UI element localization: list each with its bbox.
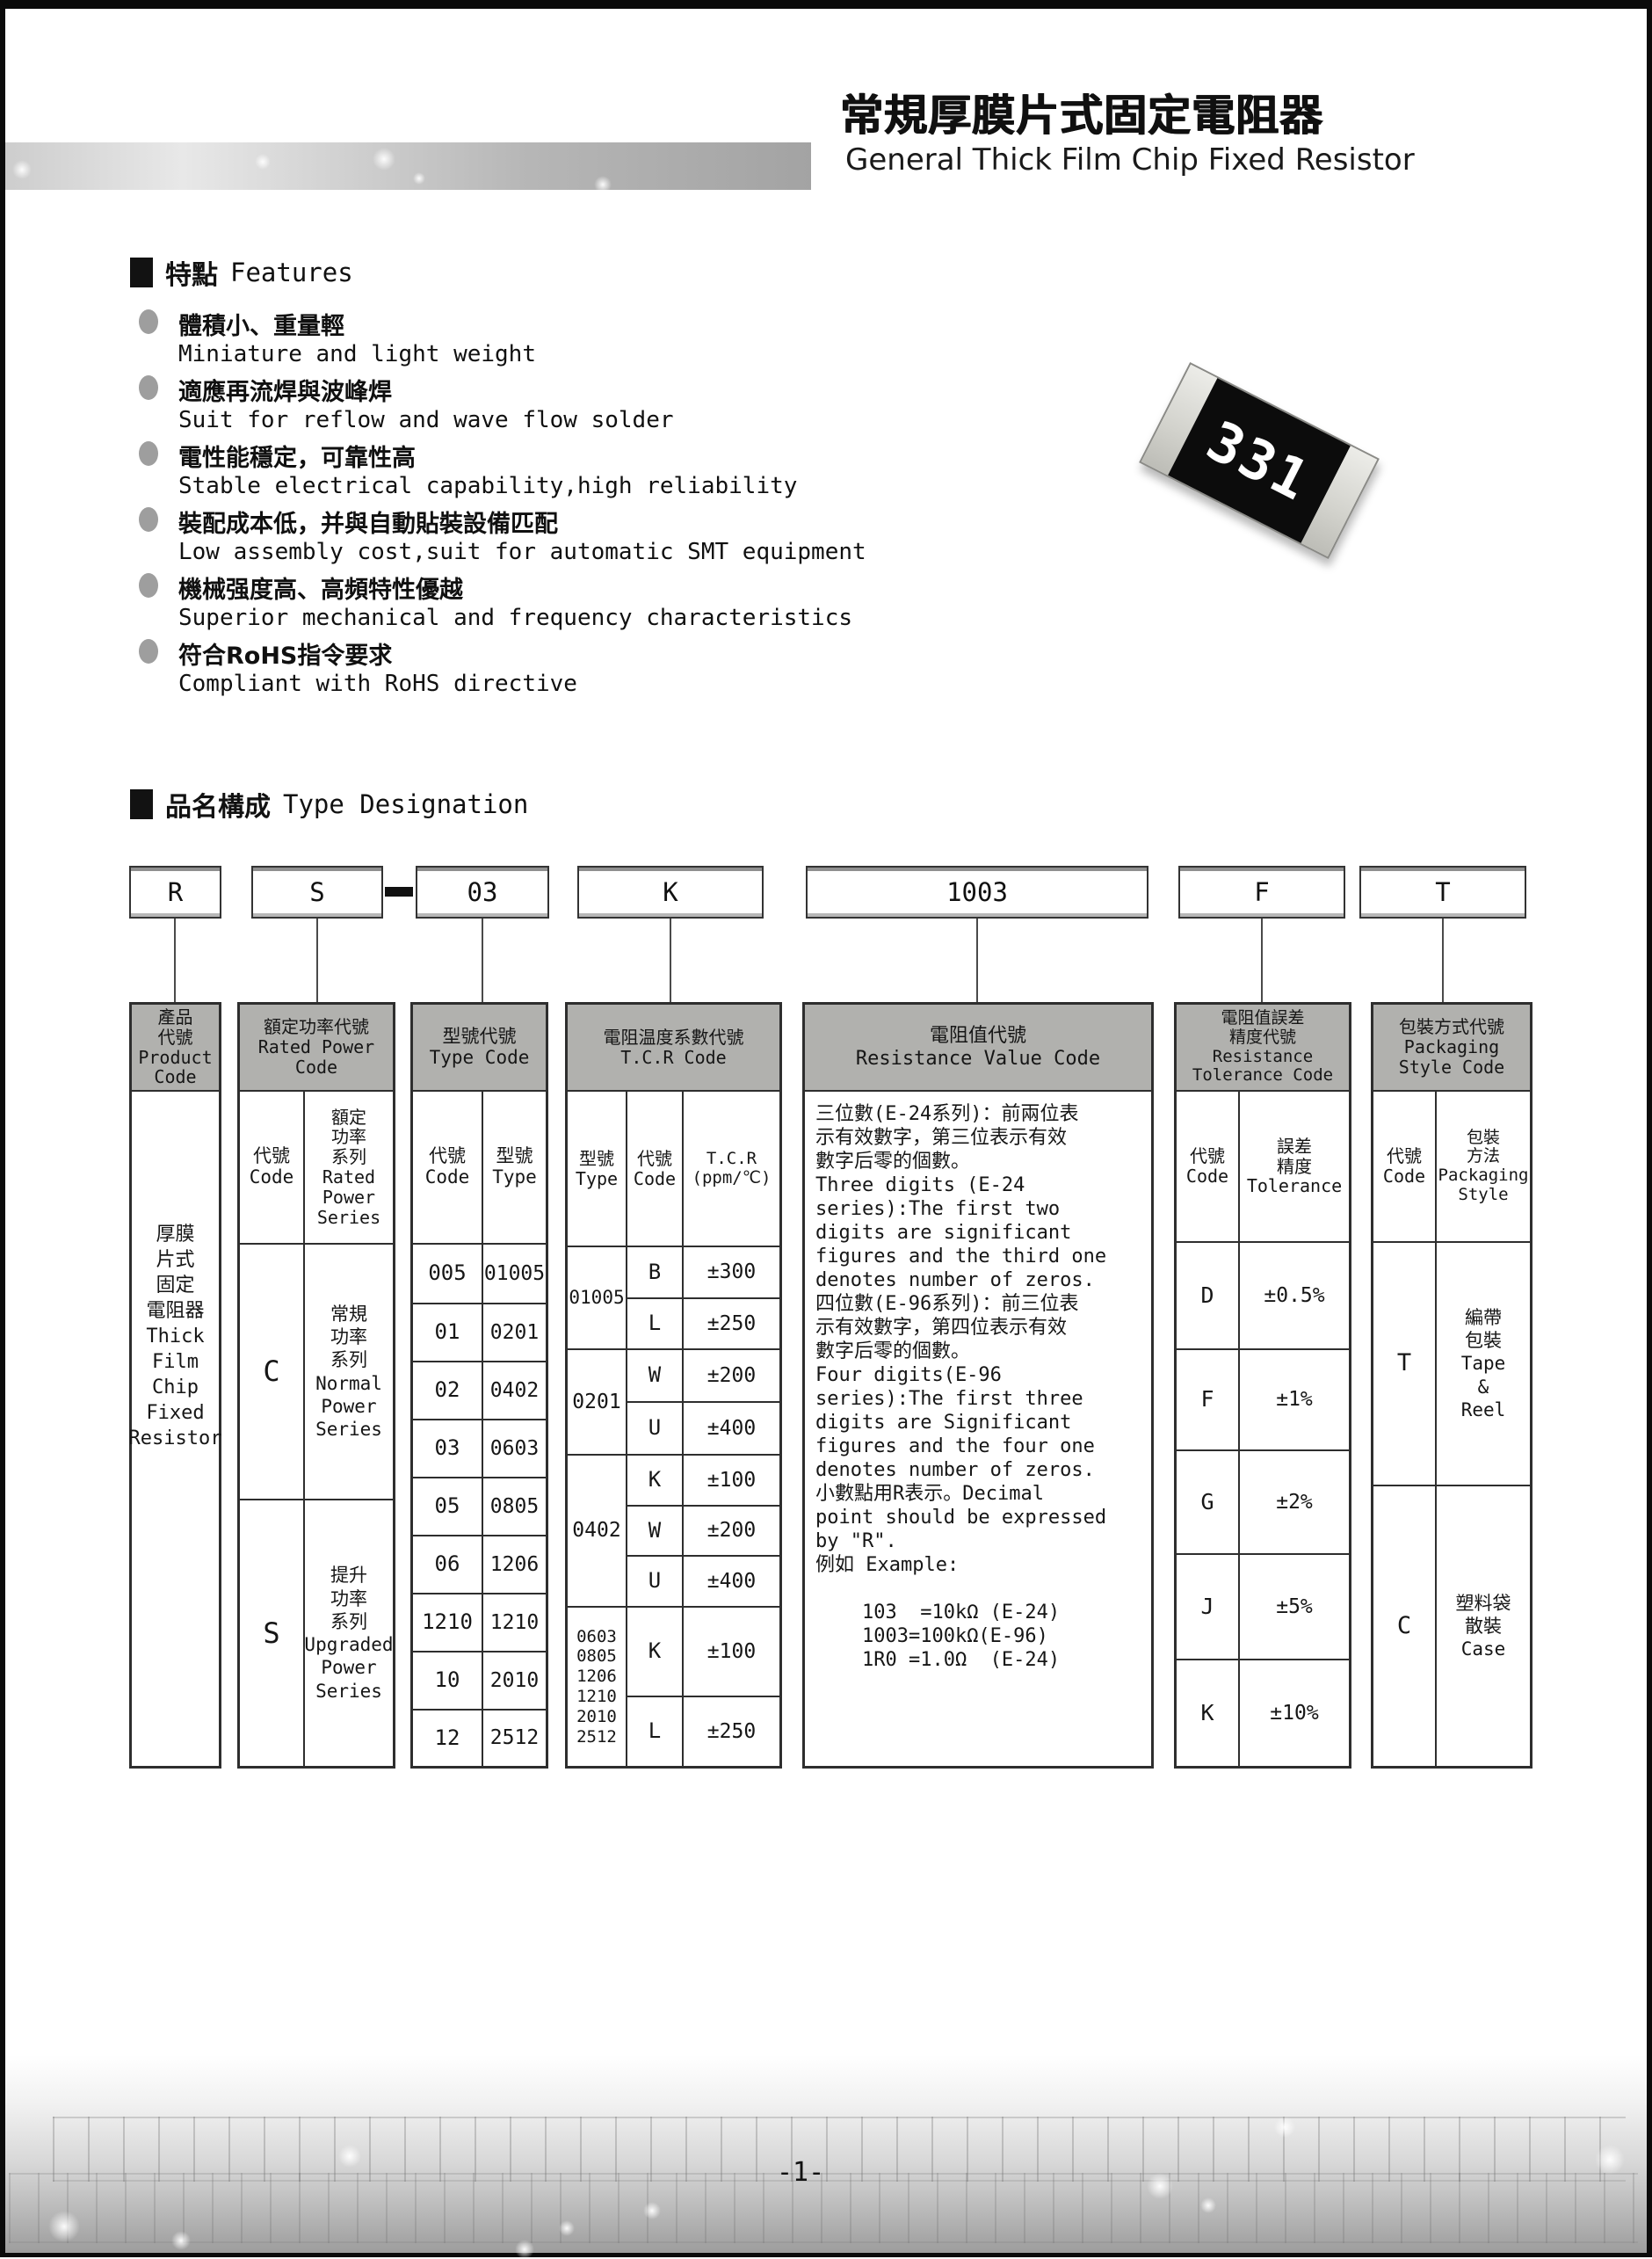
section-marker-icon: [130, 789, 153, 819]
feature-item-en: Low assembly cost,suit for automatic SMT…: [178, 539, 866, 565]
product-description: 厚膜 片式 固定 電阻器 Thick Film Chip Fixed Resis…: [132, 1090, 219, 1766]
tcr-value: ±400: [682, 1555, 779, 1606]
tcr-value: ±300: [682, 1246, 779, 1297]
features-heading-en: Features: [230, 258, 353, 287]
tolerance-code: G: [1177, 1449, 1238, 1553]
sparkle-icon: [1274, 2117, 1295, 2138]
sparkle-icon: [594, 176, 612, 193]
feature-item-zh: 電性能穩定，可靠性高: [178, 439, 416, 473]
feature-item-en: Suit for reflow and wave flow solder: [178, 407, 674, 433]
tcr-column: 電阻温度系數代號 T.C.R Code 型號 Type 代號 Code T.C.…: [565, 1002, 782, 1769]
type-row-type: 01005: [482, 1243, 546, 1303]
tcr-code: L: [626, 1297, 682, 1348]
connector-line: [1261, 919, 1263, 1002]
packaging-code: C: [1373, 1485, 1435, 1766]
type-row-type: 0603: [482, 1419, 546, 1477]
tcr-code: B: [626, 1246, 682, 1297]
type-row-type: 2512: [482, 1709, 546, 1766]
type-designation-heading-en: Type Designation: [283, 789, 528, 819]
tcr-code: K: [626, 1454, 682, 1505]
page-border-right: [1647, 0, 1652, 2257]
connector-line: [1442, 919, 1444, 1002]
page-border-top: [0, 0, 1652, 9]
tolerance-code: D: [1177, 1241, 1238, 1348]
type-code-column: 型號代號 Type Code 代號 Code 型號 Type 005 01005…: [410, 1002, 548, 1769]
feature-item-en: Superior mechanical and frequency charac…: [178, 605, 852, 631]
sparkle-icon: [373, 148, 395, 171]
code-box-tolerance: F: [1178, 866, 1345, 919]
type-row-code: 10: [413, 1651, 482, 1709]
bullet-icon: [139, 441, 158, 466]
tcr-value: ±200: [682, 1348, 779, 1401]
sparkle-icon: [1595, 2145, 1625, 2175]
type-row-type: 0805: [482, 1477, 546, 1535]
tcr-value: ±250: [682, 1696, 779, 1766]
subheader-tcr: T.C.R (ppm/℃): [682, 1090, 779, 1246]
sparkle-icon: [12, 160, 32, 179]
tolerance-value: ±5%: [1238, 1553, 1349, 1659]
tcr-group-type: 01005: [568, 1246, 626, 1348]
sparkle-icon: [48, 2211, 80, 2242]
header-gradient-band: [5, 142, 811, 190]
type-row-type: 1210: [482, 1593, 546, 1651]
tcr-group-type: 0603 0805 1206 1210 2010 2512: [568, 1606, 626, 1766]
column-header: 包裝方式代號 Packaging Style Code: [1373, 1005, 1530, 1090]
column-header: 型號代號 Type Code: [413, 1005, 546, 1090]
code-box-tcr: K: [577, 866, 764, 919]
footer-box-pattern: [53, 2117, 1626, 2182]
rated-power-column: 額定功率代號 Rated Power Code 代號 Code 額定 功率 系列…: [237, 1002, 395, 1769]
subheader-type: 型號 Type: [482, 1090, 546, 1243]
code-box-packaging: T: [1359, 866, 1526, 919]
type-row-code: 01: [413, 1303, 482, 1361]
type-designation-heading: 品名構成 Type Designation: [130, 785, 528, 824]
subheader-type: 型號 Type: [568, 1090, 626, 1246]
tcr-value: ±100: [682, 1454, 779, 1505]
type-row-type: 0402: [482, 1361, 546, 1419]
subheader-series: 額定 功率 系列 Rated Power Series: [303, 1090, 393, 1243]
feature-item-zh: 機械强度高、高頻特性優越: [178, 570, 463, 605]
feature-item-en: Miniature and light weight: [178, 341, 536, 367]
features-heading-zh: 特點: [165, 253, 218, 292]
chip-resistor-image: 331: [1139, 362, 1380, 559]
code-box-value: 1003: [806, 866, 1148, 919]
column-header: 電阻值誤差 精度代號 Resistance Tolerance Code: [1177, 1005, 1349, 1090]
type-designation-heading-zh: 品名構成: [165, 785, 271, 824]
feature-item-en: Stable electrical capability,high reliab…: [178, 473, 797, 499]
type-row-type: 1206: [482, 1535, 546, 1593]
features-section-heading: 特點 Features: [130, 253, 353, 292]
column-header: 電阻温度系數代號 T.C.R Code: [568, 1005, 779, 1090]
sparkle-icon: [255, 154, 271, 170]
power-series: 提升 功率 系列 Upgraded Power Series: [303, 1499, 393, 1766]
sparkle-icon: [559, 2220, 575, 2236]
type-row-type: 0201: [482, 1303, 546, 1361]
tolerance-code: K: [1177, 1659, 1238, 1766]
sparkle-icon: [643, 2202, 661, 2219]
power-code: C: [240, 1243, 303, 1499]
tcr-value: ±400: [682, 1401, 779, 1454]
column-header: 產品 代號 Product Code: [132, 1005, 219, 1090]
subheader-tolerance: 誤差 精度 Tolerance: [1238, 1090, 1349, 1241]
tolerance-code: J: [1177, 1553, 1238, 1659]
sparkle-icon: [338, 2145, 361, 2168]
type-row-code: 06: [413, 1535, 482, 1593]
type-row-code: 005: [413, 1243, 482, 1303]
feature-item-zh: 適應再流焊與波峰焊: [178, 373, 392, 407]
tcr-code: U: [626, 1401, 682, 1454]
subheader-code: 代號 Code: [240, 1090, 303, 1243]
connector-line: [670, 919, 671, 1002]
tolerance-column: 電阻值誤差 精度代號 Resistance Tolerance Code 代號 …: [1174, 1002, 1351, 1769]
resistance-value-description: 三位數(E-24系列)：前兩位表 示有效數字，第三位表示有效 數字后零的個數。 …: [805, 1090, 1151, 1766]
tcr-code: L: [626, 1696, 682, 1766]
column-header: 電阻值代號 Resistance Value Code: [805, 1005, 1151, 1090]
bullet-icon: [139, 639, 158, 664]
tcr-value: ±250: [682, 1297, 779, 1348]
code-box-power: S: [251, 866, 383, 919]
sparkle-icon: [1147, 2173, 1173, 2199]
sparkle-icon: [1200, 2197, 1216, 2213]
type-row-code: 02: [413, 1361, 482, 1419]
page-border-left: [0, 0, 5, 2257]
subheader-style: 包裝 方法 Packaging Style: [1435, 1090, 1530, 1241]
tcr-group-type: 0402: [568, 1454, 626, 1606]
subheader-code: 代號 Code: [1373, 1090, 1435, 1241]
connector-line: [482, 919, 483, 1002]
subheader-code: 代號 Code: [1177, 1090, 1238, 1241]
type-row-type: 2010: [482, 1651, 546, 1709]
page-title: 常規厚膜片式固定電阻器: [840, 81, 1323, 143]
tcr-code: W: [626, 1348, 682, 1401]
type-row-code: 03: [413, 1419, 482, 1477]
tolerance-value: ±2%: [1238, 1449, 1349, 1553]
page-subtitle: General Thick Film Chip Fixed Resistor: [845, 142, 1415, 178]
connector-line: [316, 919, 318, 1002]
tcr-code: K: [626, 1606, 682, 1696]
packaging-style: 編帶 包裝 Tape & Reel: [1435, 1241, 1530, 1485]
connector-line: [976, 919, 978, 1002]
subheader-code: 代號 Code: [413, 1090, 482, 1243]
type-row-code: 05: [413, 1477, 482, 1535]
code-box-product: R: [129, 866, 221, 919]
column-header: 額定功率代號 Rated Power Code: [240, 1005, 393, 1090]
subheader-code: 代號 Code: [626, 1090, 682, 1246]
type-row-code: 1210: [413, 1593, 482, 1651]
power-series: 常規 功率 系列 Normal Power Series: [303, 1243, 393, 1499]
tolerance-code: F: [1177, 1348, 1238, 1449]
type-row-code: 12: [413, 1709, 482, 1766]
feature-item-zh: 體積小、重量輕: [178, 307, 344, 341]
tcr-code: W: [626, 1505, 682, 1555]
bullet-icon: [139, 507, 158, 532]
tolerance-value: ±0.5%: [1238, 1241, 1349, 1348]
sparkle-icon: [171, 2231, 191, 2250]
feature-item-zh: 裝配成本低，并與自動貼裝設備匹配: [178, 505, 558, 539]
tcr-value: ±100: [682, 1606, 779, 1696]
packaging-column: 包裝方式代號 Packaging Style Code 代號 Code 包裝 方…: [1371, 1002, 1532, 1769]
sparkle-icon: [515, 2240, 534, 2259]
product-code-column: 產品 代號 Product Code 厚膜 片式 固定 電阻器 Thick Fi…: [129, 1002, 221, 1769]
connector-line: [174, 919, 176, 1002]
power-code: S: [240, 1499, 303, 1766]
packaging-style: 塑料袋 散裝 Case: [1435, 1485, 1530, 1766]
tolerance-value: ±1%: [1238, 1348, 1349, 1449]
feature-item-zh: 符合RoHS指令要求: [178, 636, 392, 671]
bullet-icon: [139, 309, 158, 334]
section-marker-icon: [130, 258, 153, 287]
tcr-value: ±200: [682, 1505, 779, 1555]
resistance-value-column: 電阻值代號 Resistance Value Code 三位數(E-24系列)：…: [802, 1002, 1154, 1769]
code-box-type: 03: [416, 866, 549, 919]
tcr-code: U: [626, 1555, 682, 1606]
tcr-group-type: 0201: [568, 1348, 626, 1454]
bullet-icon: [139, 375, 158, 400]
bullet-icon: [139, 573, 158, 598]
code-dash: [385, 887, 413, 897]
page-number: -1-: [777, 2157, 824, 2188]
packaging-code: T: [1373, 1241, 1435, 1485]
feature-item-en: Compliant with RoHS directive: [178, 671, 577, 697]
sparkle-icon: [413, 172, 425, 185]
tolerance-value: ±10%: [1238, 1659, 1349, 1766]
